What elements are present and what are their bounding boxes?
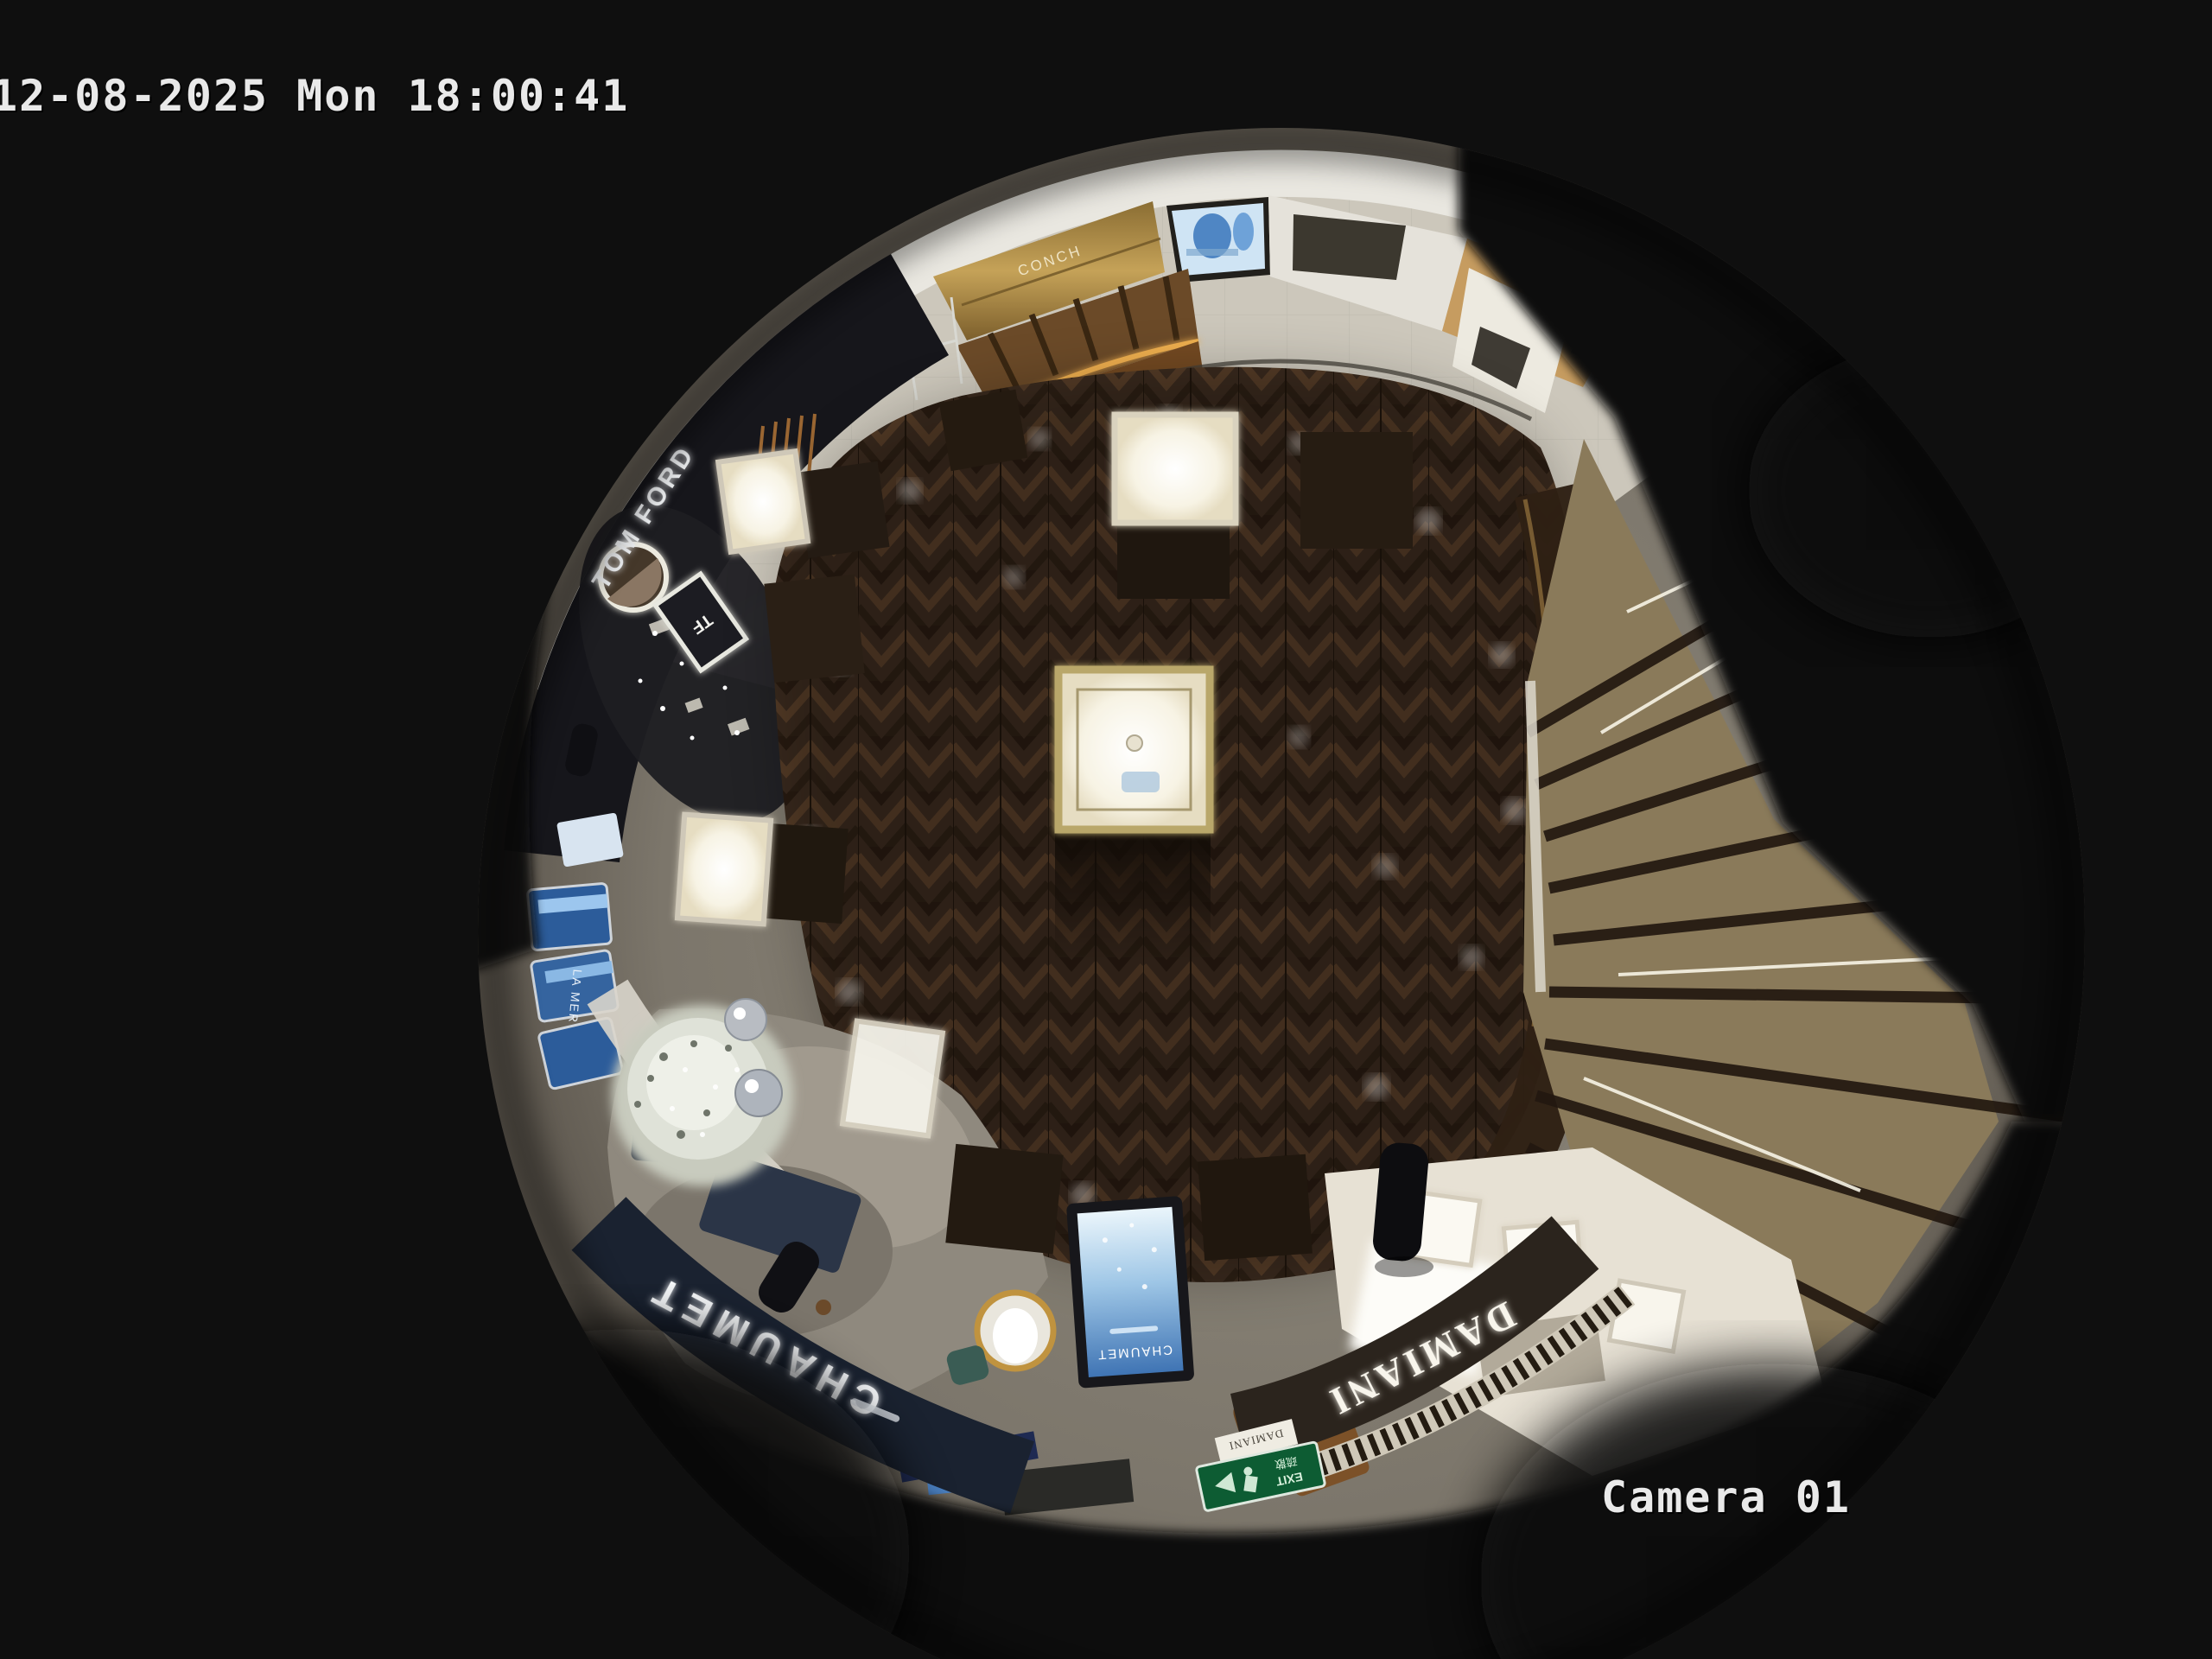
jewelry-tray [1122, 772, 1160, 792]
person-damiani [1371, 1141, 1430, 1262]
glass-display-case [842, 1021, 943, 1136]
osd-timestamp: 12-08-2025 Mon 18:00:41 [0, 71, 629, 121]
chaumet-totem: CHAUMET [1066, 1196, 1195, 1389]
mirror-ball-ornament [725, 999, 766, 1040]
dark-plinth [939, 390, 1028, 471]
dark-plinth [1117, 525, 1230, 599]
exit-runner [1243, 1475, 1257, 1492]
mirror-ball-ornament [735, 1070, 782, 1116]
osd-camera-label: Camera 01 [1601, 1472, 1851, 1522]
dark-plinth [1198, 1154, 1313, 1261]
fisheye-scene: CONCH [478, 128, 2085, 1659]
dark-plinth [945, 1144, 1063, 1254]
dark-plinth [796, 461, 889, 558]
white-sculpture [993, 1308, 1038, 1363]
central-vitrine [1055, 670, 1211, 962]
mall-screen [1166, 197, 1270, 283]
cctv-frame: 12-08-2025 Mon 18:00:41 Camera 01 [0, 0, 2212, 1659]
lit-vitrine-top [1115, 415, 1236, 523]
lit-vitrine [677, 815, 771, 925]
lit-vitrine [718, 451, 808, 552]
dark-plinth [1300, 432, 1413, 549]
dark-plinth [764, 823, 848, 924]
dark-plinth [764, 575, 864, 683]
dog [816, 1300, 831, 1315]
fisheye-view: CONCH [478, 128, 2085, 1659]
dark-shop-window [1293, 214, 1406, 280]
